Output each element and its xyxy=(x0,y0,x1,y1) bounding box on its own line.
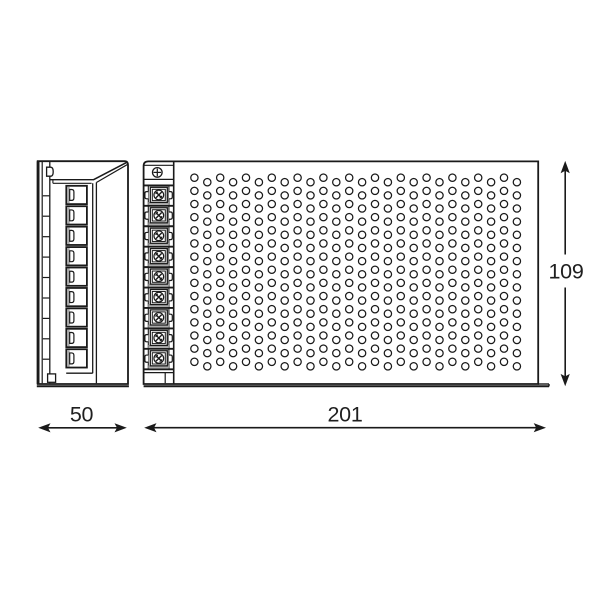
svg-text:50: 50 xyxy=(70,403,94,427)
svg-text:201: 201 xyxy=(328,402,363,426)
svg-text:109: 109 xyxy=(549,260,584,284)
